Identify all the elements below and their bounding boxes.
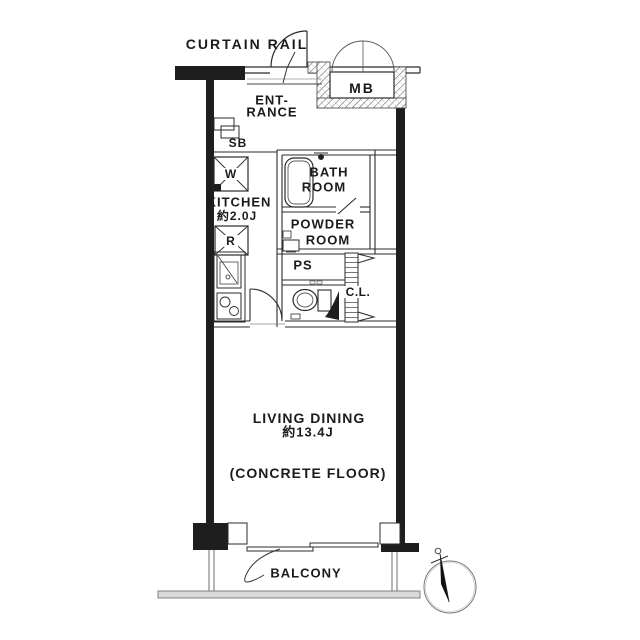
living-dining-size-label: 約13.4J (282, 426, 334, 439)
bath-label-line1: BATH (309, 166, 348, 179)
refrigerator-label: R (224, 235, 238, 247)
toilet-shelf-mark-2 (317, 281, 322, 284)
bath-faucet-icon (319, 155, 324, 160)
floor-plan: CURTAIN RAIL MB ENT- RANCE SB KITCHEN 約2… (0, 0, 640, 640)
bath-door-line (338, 198, 356, 214)
toilet-paper-holder (291, 314, 300, 319)
floor-note-label: (CONCRETE FLOOR) (230, 466, 387, 480)
curtain-rail-label: CURTAIN RAIL (186, 37, 309, 51)
toilet-shelf-mark-1 (310, 281, 315, 284)
powder-label-line2: ROOM (306, 234, 350, 247)
kitchen-label: KITCHEN (207, 196, 272, 209)
compass-tip-loop (435, 548, 441, 554)
kitchen-sink-drain (226, 275, 230, 279)
mb-wall-bottom (317, 98, 406, 108)
kitchen-stove (217, 293, 241, 319)
wall-left (206, 78, 214, 550)
shoe-box-shape (214, 118, 239, 138)
kitchen-size-label: 約2.0J (217, 210, 257, 222)
bath-label-line2: ROOM (302, 181, 346, 194)
living-dining-label: LIVING DINING (253, 411, 366, 425)
pipe-space-label: PS (293, 259, 312, 272)
floor-plan-linework (0, 0, 640, 640)
entrance-label-line2: RANCE (246, 106, 297, 119)
meter-box-label: MB (349, 81, 375, 95)
closet-door-arrow-bottom (358, 312, 374, 321)
wall-bottom-left (193, 523, 228, 550)
compass-circle-outer (424, 561, 476, 613)
kitchen-burner-2 (230, 307, 239, 316)
washer-label: W (223, 168, 239, 180)
wall-right (396, 106, 405, 547)
wall-top-left (175, 66, 245, 80)
toilet-room (291, 281, 339, 320)
closet-label: C.L. (344, 286, 373, 298)
balcony-railing (158, 591, 420, 598)
toilet-tank (318, 290, 331, 311)
sash-pocket-left (228, 523, 247, 544)
sash-pocket-right (380, 523, 400, 544)
washbasin (283, 240, 299, 251)
compass (424, 548, 476, 613)
washer-box-corner-mark (214, 184, 221, 191)
sliding-door-panel-right (310, 543, 378, 547)
meter-box (308, 41, 406, 108)
compass-crossbar (431, 556, 448, 563)
compass-circle-inner (426, 563, 475, 612)
closet-door-arrow-top (358, 254, 374, 263)
shoe-box-label: SB (229, 137, 248, 149)
powder-label-line1: POWDER (291, 218, 356, 231)
powder-room-fixtures (283, 231, 299, 252)
kitchen-burner-1 (220, 297, 230, 307)
balcony-label: BALCONY (270, 567, 341, 580)
shoe-box-rect-1 (214, 118, 234, 130)
washbasin-side-unit (283, 231, 291, 238)
